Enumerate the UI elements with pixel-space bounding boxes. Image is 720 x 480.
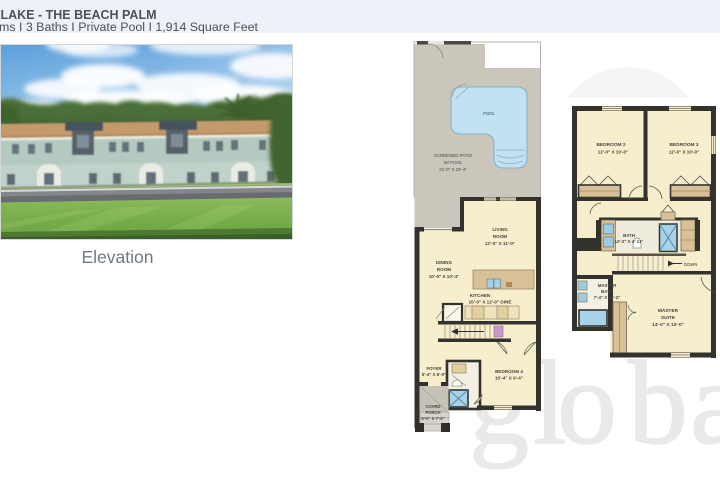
svg-text:POOL: POOL (483, 111, 495, 116)
svg-text:MASTER: MASTER (598, 283, 617, 288)
svg-text:14'-0" X 13'-0": 14'-0" X 13'-0" (652, 322, 684, 328)
svg-text:DOWN: DOWN (684, 262, 697, 267)
svg-text:W/ POOL: W/ POOL (444, 160, 463, 165)
svg-text:KITCHEN: KITCHEN (470, 293, 491, 298)
svg-text:7'-4" X 12'-2": 7'-4" X 12'-2" (594, 295, 621, 300)
svg-text:LIVING: LIVING (492, 227, 508, 232)
svg-text:12'-0" X 10'-0": 12'-0" X 10'-0" (669, 150, 700, 155)
svg-text:5'-4" X 6'-0": 5'-4" X 6'-0" (422, 372, 446, 377)
svg-text:BEDROOM 2: BEDROOM 2 (596, 142, 625, 148)
svg-text:MASTER: MASTER (658, 308, 679, 314)
svg-text:PORCH: PORCH (425, 410, 440, 415)
svg-text:21'-0" X 20'-4": 21'-0" X 20'-4" (439, 167, 467, 172)
svg-text:BEDROOM 4: BEDROOM 4 (495, 369, 523, 374)
svg-text:BATH: BATH (623, 233, 635, 238)
svg-text:FOYER: FOYER (426, 366, 442, 371)
svg-text:ROOM: ROOM (493, 234, 507, 239)
svg-text:12'-0" X 11'-0": 12'-0" X 11'-0" (485, 241, 515, 246)
svg-text:SUITE: SUITE (661, 315, 676, 321)
svg-text:Elevation: Elevation (82, 247, 154, 267)
svg-text:DINING: DINING (436, 260, 453, 265)
svg-text:o: o (557, 336, 617, 469)
svg-text:SCREENED PATIO: SCREENED PATIO (434, 153, 473, 158)
svg-text:ROOM: ROOM (437, 267, 451, 272)
svg-text:12'-0" X 10'-0": 12'-0" X 10'-0" (598, 150, 629, 155)
svg-text:BATH: BATH (601, 289, 613, 294)
svg-text:5'-0" X 7'-0": 5'-0" X 7'-0" (421, 416, 444, 421)
svg-text:12'-2" X 4'-11": 12'-2" X 4'-11" (615, 239, 644, 244)
svg-text:10'-0" X 10'-4": 10'-0" X 10'-4" (429, 274, 460, 279)
svg-text:10'-0" X 12'-0" DINE: 10'-0" X 12'-0" DINE (469, 300, 512, 305)
svg-text:COVRD: COVRD (425, 404, 440, 409)
svg-text:10'-4" X 9'-4": 10'-4" X 9'-4" (495, 376, 523, 381)
svg-text:BEDROOM 3: BEDROOM 3 (669, 142, 698, 148)
svg-text:ms I 3 Baths I Private Pool I: ms I 3 Baths I Private Pool I 1,914 Squa… (0, 20, 259, 34)
